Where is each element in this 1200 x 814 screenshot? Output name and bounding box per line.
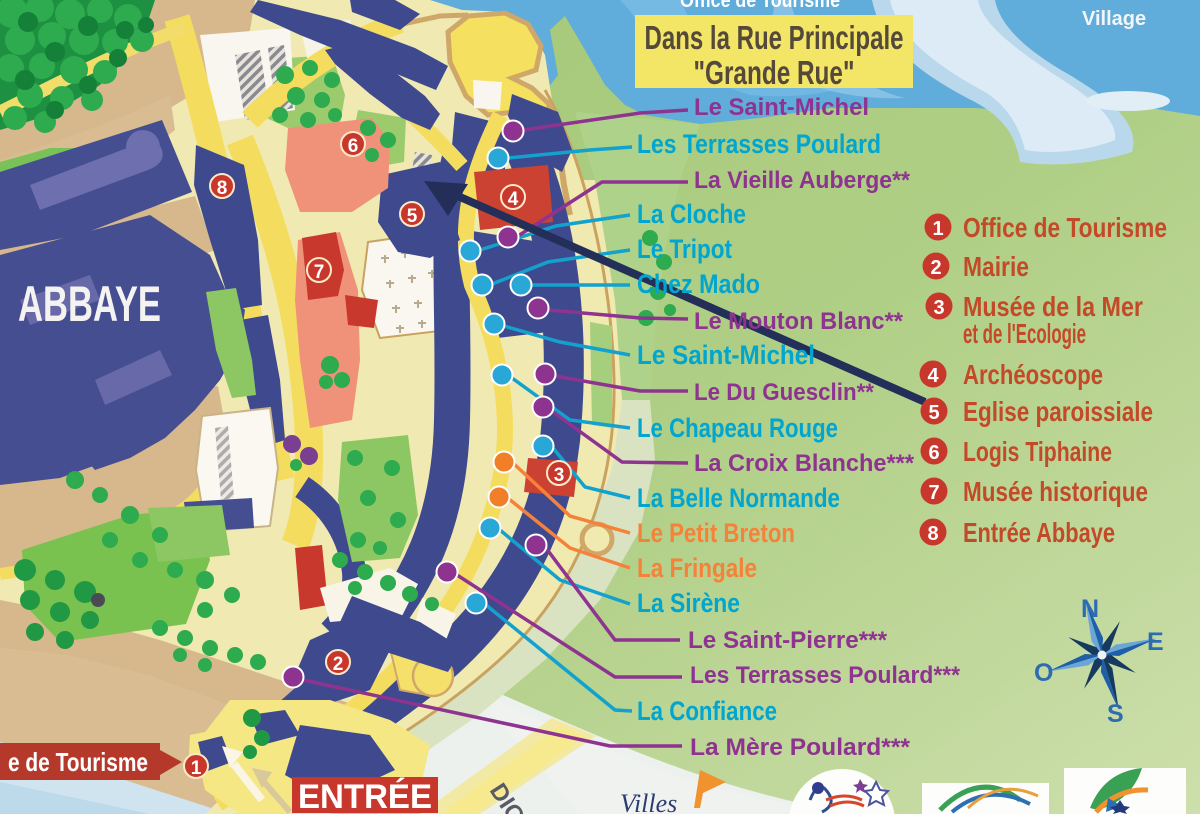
svg-text:Archéoscope: Archéoscope [963,359,1103,390]
svg-text:La Cloche: La Cloche [637,199,746,229]
svg-text:5: 5 [407,206,418,227]
svg-text:6: 6 [348,136,359,157]
svg-text:7: 7 [928,482,939,504]
svg-text:Dans la Rue Principale: Dans la Rue Principale [645,19,904,56]
svg-text:4: 4 [508,189,519,210]
svg-text:La Mère Poulard***: La Mère Poulard*** [690,734,911,761]
svg-text:S: S [1107,700,1124,728]
svg-text:ENTRÉE: ENTRÉE [298,778,432,814]
svg-text:Le Saint-Pierre***: Le Saint-Pierre*** [688,627,888,654]
svg-text:Office de Tourisme: Office de Tourisme [680,0,840,12]
svg-text:Village: Village [1082,8,1146,30]
svg-text:8: 8 [217,178,228,199]
svg-text:Le Saint-Michel: Le Saint-Michel [694,94,869,121]
svg-text:La Sirène: La Sirène [637,588,740,618]
svg-text:5: 5 [928,402,939,424]
svg-text:Le Saint-Michel: Le Saint-Michel [637,340,815,370]
svg-text:3: 3 [554,465,565,486]
svg-text:O: O [1034,659,1053,687]
svg-text:"Grande Rue": "Grande Rue" [694,54,855,91]
svg-text:Mairie: Mairie [963,251,1029,282]
svg-text:7: 7 [314,262,325,283]
svg-text:8: 8 [927,523,938,545]
svg-text:N: N [1081,595,1099,623]
svg-text:La Croix Blanche***: La Croix Blanche*** [694,450,915,477]
svg-text:Musée historique: Musée historique [963,476,1148,507]
svg-text:2: 2 [930,257,941,279]
svg-text:La Confiance: La Confiance [637,696,777,726]
svg-text:La Vieille Auberge**: La Vieille Auberge** [694,167,911,194]
svg-text:Logis Tiphaine: Logis Tiphaine [963,436,1112,467]
svg-text:6: 6 [928,442,939,464]
svg-text:Le Du Guesclin**: Le Du Guesclin** [694,379,875,406]
svg-text:1: 1 [932,218,943,240]
svg-text:Le Chapeau Rouge: Le Chapeau Rouge [637,413,838,443]
svg-text:3: 3 [933,297,944,319]
svg-text:4: 4 [927,365,939,387]
svg-text:Le Tripot: Le Tripot [637,234,732,264]
svg-text:Les Terrasses Poulard***: Les Terrasses Poulard*** [690,662,961,689]
svg-text:Le Mouton Blanc**: Le Mouton Blanc** [694,308,904,335]
svg-text:2: 2 [333,654,344,675]
svg-text:Le Petit Breton: Le Petit Breton [637,518,795,548]
svg-text:Eglise paroissiale: Eglise paroissiale [963,396,1153,427]
svg-text:Les Terrasses Poulard: Les Terrasses Poulard [637,129,881,159]
svg-text:Office de Tourisme: Office de Tourisme [963,212,1167,243]
svg-text:La Belle Normande: La Belle Normande [637,483,840,513]
svg-text:Entrée Abbaye: Entrée Abbaye [963,517,1115,548]
svg-text:Villes: Villes [620,789,677,814]
svg-text:Chez Mado: Chez Mado [637,269,760,299]
svg-text:et de l'Ecologie: et de l'Ecologie [963,318,1086,349]
svg-text:ABBAYE: ABBAYE [18,276,161,332]
svg-text:1: 1 [191,758,202,779]
svg-text:E: E [1147,628,1164,656]
svg-text:La Fringale: La Fringale [637,553,757,583]
svg-text:e de Tourisme: e de Tourisme [8,747,148,777]
